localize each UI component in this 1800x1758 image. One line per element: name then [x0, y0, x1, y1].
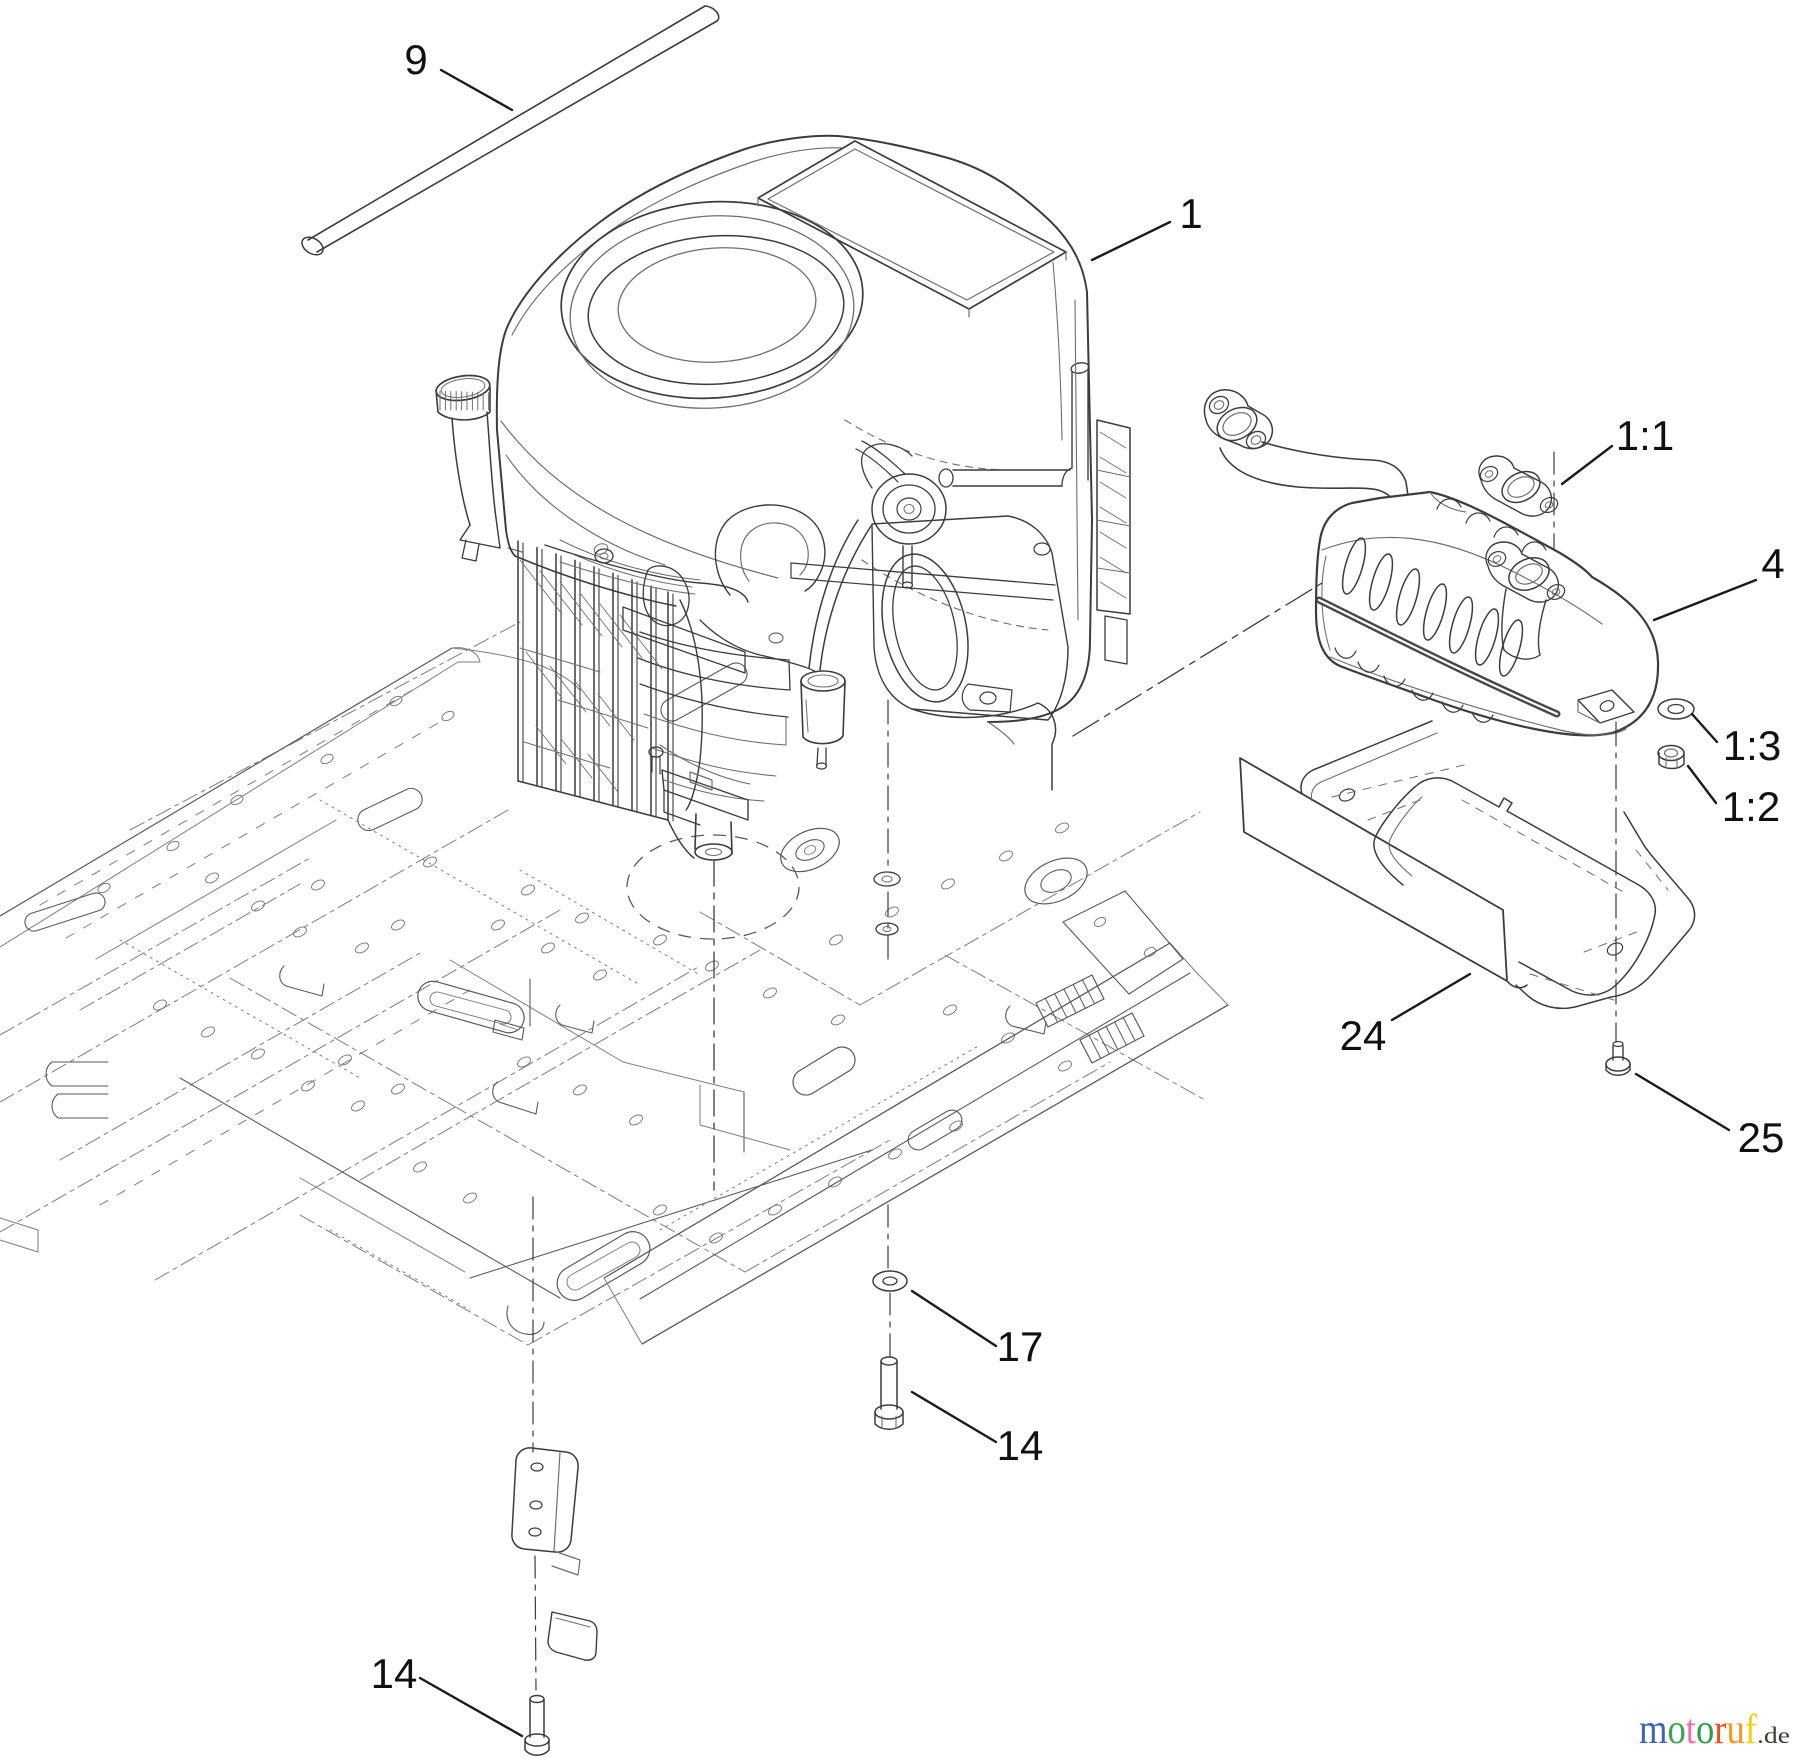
svg-text:25: 25: [1738, 1114, 1785, 1161]
svg-text:4: 4: [1761, 540, 1784, 587]
svg-text:1:3: 1:3: [1723, 722, 1781, 769]
svg-text:1: 1: [1179, 190, 1202, 237]
svg-text:1:1: 1:1: [1616, 412, 1674, 459]
svg-text:14: 14: [371, 1650, 418, 1697]
svg-text:.de: .de: [1757, 1723, 1790, 1748]
svg-text:14: 14: [997, 1422, 1044, 1469]
svg-text:17: 17: [997, 1323, 1044, 1370]
svg-text:1:2: 1:2: [1722, 783, 1780, 830]
svg-text:24: 24: [1340, 1012, 1387, 1059]
svg-text:9: 9: [404, 36, 427, 83]
svg-text:motoruf: motoruf: [1639, 1707, 1757, 1753]
